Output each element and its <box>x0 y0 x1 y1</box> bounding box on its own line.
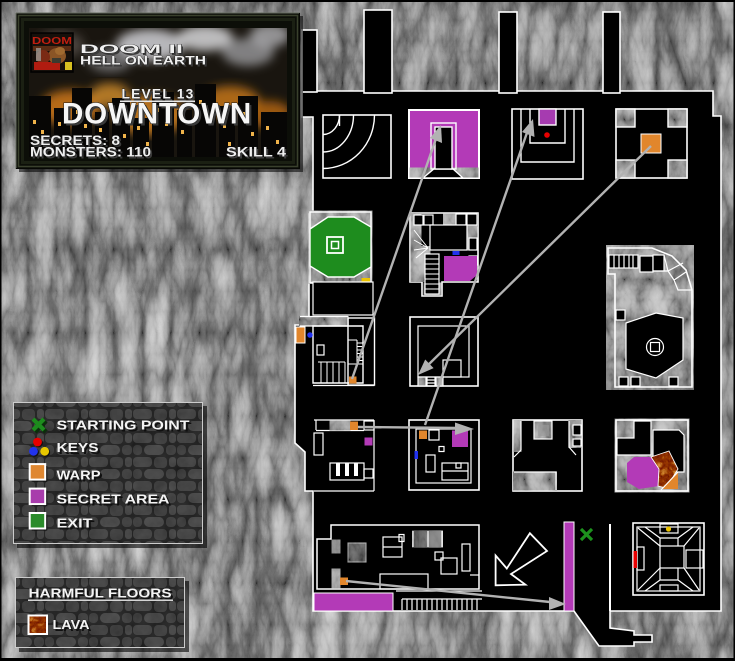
svg-text:LAVA: LAVA <box>53 618 90 632</box>
svg-text:DOWNTOWN: DOWNTOWN <box>62 98 252 131</box>
svg-text:HELL ON EARTH: HELL ON EARTH <box>80 54 206 68</box>
svg-text:WARP: WARP <box>57 469 101 483</box>
svg-text:EXIT: EXIT <box>57 517 93 531</box>
svg-text:HARMFUL FLOORS: HARMFUL FLOORS <box>29 587 172 601</box>
svg-text:DOOM: DOOM <box>32 35 72 47</box>
svg-text:SECRET AREA: SECRET AREA <box>57 493 170 507</box>
svg-text:STARTING POINT: STARTING POINT <box>57 419 190 433</box>
svg-text:MONSTERS: 110: MONSTERS: 110 <box>30 145 151 160</box>
svg-text:KEYS: KEYS <box>57 441 99 455</box>
svg-text:SKILL 4: SKILL 4 <box>226 145 287 160</box>
